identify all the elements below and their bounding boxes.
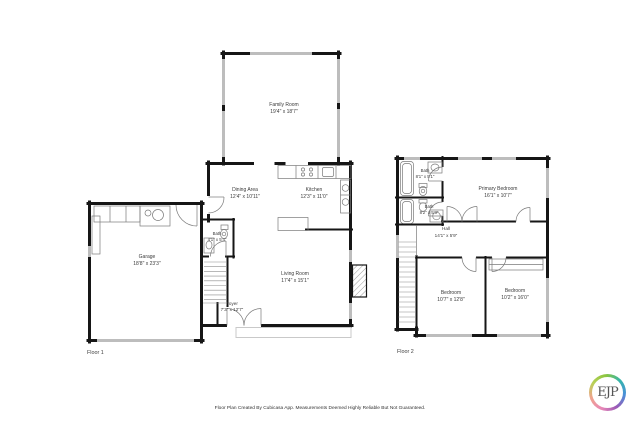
room-label-bath-f1: Bath [213,231,222,236]
floor2-stairs [399,225,417,322]
room-labels: Family Room 19'4" x 18'7" Dining Area 12… [133,102,529,312]
room-label-garage: Garage [139,254,156,260]
room-dims-living-room: 17'4" x 15'1" [281,278,309,284]
room-label-foyer: Foyer [226,301,238,306]
floor1-title: Floor 1 [87,350,104,356]
floor-plan-page: Family Room 19'4" x 18'7" Dining Area 12… [0,0,640,426]
logo-inner-circle: EJP [592,377,623,408]
floor-plan-canvas: Family Room 19'4" x 18'7" Dining Area 12… [0,0,640,426]
floor-titles: Floor 1 Floor 2 [87,349,414,356]
room-dims-dining-area: 12'4" x 10'11" [230,194,260,200]
room-dims-bath-lower: 8'2" x 5'3" [420,210,439,215]
room-label-family-room: Family Room [269,102,298,108]
room-label-bath-lower: Bath [425,204,434,209]
room-label-bath-upper: Bath [421,168,430,173]
floor2-plan [396,157,549,337]
floor2-title: Floor 2 [397,349,414,355]
room-dims-hall: 14'1" x 5'9" [435,233,458,238]
footer-disclaimer: Floor Plan Created By Cubicasa App. Meas… [215,405,426,411]
room-dims-bedroom-right: 10'2" x 16'0" [501,295,529,301]
logo-ring-icon: EJP [589,374,626,411]
fireplace [353,265,367,297]
room-dims-bath-upper: 8'1" x 5'1" [416,174,435,179]
floor1-stairs [203,262,227,303]
room-dims-bath-f1: 4'1" x 5'4" [208,237,227,242]
logo-text: EJP [597,385,617,400]
room-label-primary-bedroom: Primary Bedroom [479,186,518,192]
room-dims-primary-bedroom: 16'1" x 10'7" [484,193,512,199]
company-logo: EJP [589,374,626,411]
room-dims-garage: 18'8" x 23'3" [133,261,161,267]
room-label-bedroom-right: Bedroom [505,288,525,294]
room-dims-kitchen: 12'3" x 11'0" [300,194,327,200]
room-dims-foyer: 7'3" x 12'7" [221,307,244,312]
room-label-kitchen: Kitchen [306,187,323,193]
room-dims-family-room: 19'4" x 18'7" [270,109,298,115]
room-label-bedroom-left: Bedroom [441,290,461,296]
room-label-dining-area: Dining Area [232,187,258,193]
room-label-hall: Hall [442,226,450,231]
room-dims-bedroom-left: 10'7" x 12'8" [437,297,465,303]
room-label-living-room: Living Room [281,271,309,277]
floor2-windows [398,159,548,336]
